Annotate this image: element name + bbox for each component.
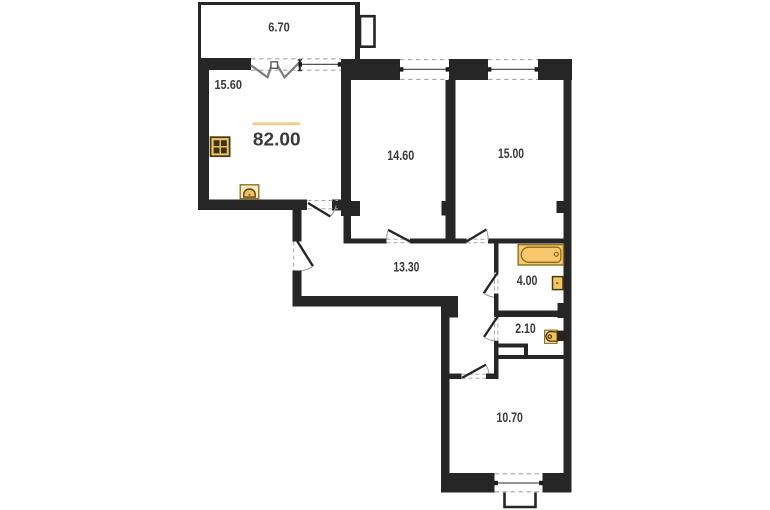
- svg-text:6.70: 6.70: [268, 20, 290, 35]
- svg-text:15.60: 15.60: [214, 77, 242, 92]
- svg-text:10.70: 10.70: [497, 409, 524, 425]
- svg-text:82.00: 82.00: [253, 129, 301, 150]
- svg-text:13.30: 13.30: [393, 260, 419, 275]
- svg-text:15.00: 15.00: [498, 145, 524, 161]
- svg-text:4.00: 4.00: [517, 273, 538, 288]
- svg-text:14.60: 14.60: [387, 147, 414, 163]
- svg-text:2.10: 2.10: [515, 321, 536, 336]
